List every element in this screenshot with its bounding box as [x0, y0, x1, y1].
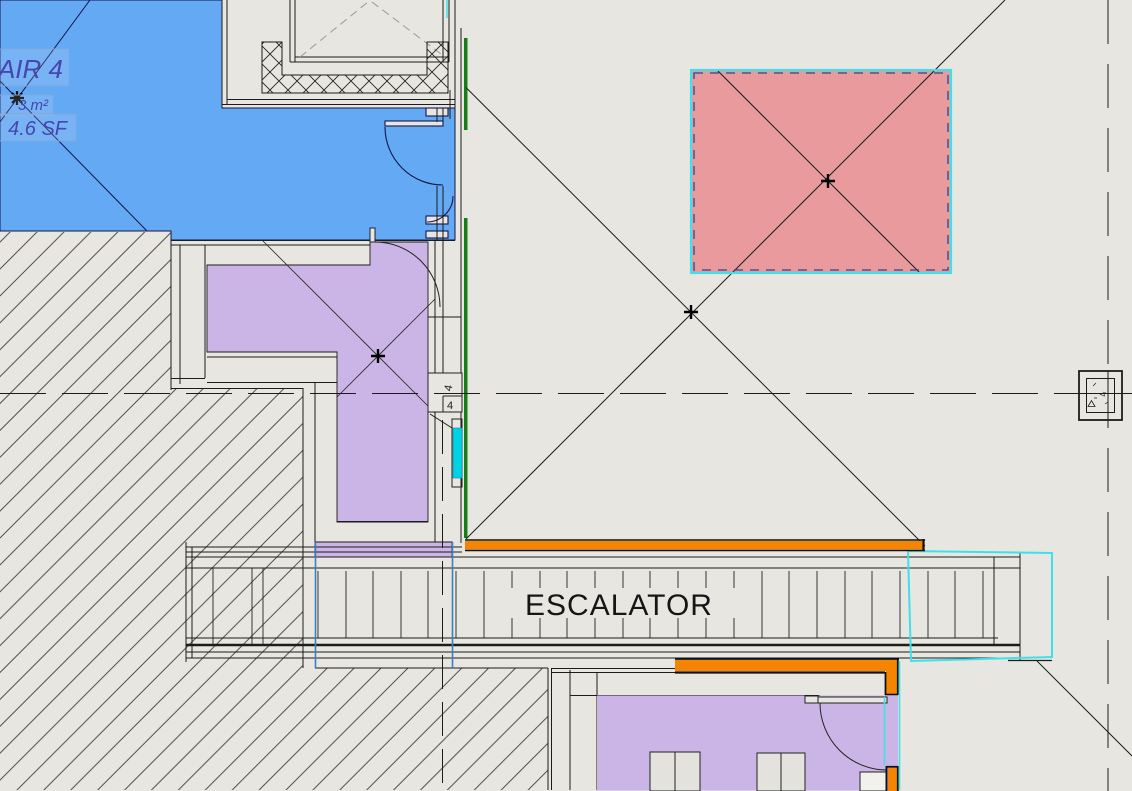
red-region-fill[interactable]	[691, 70, 951, 273]
door-tag[interactable]: 4 4	[428, 373, 462, 412]
lower-corner-box	[860, 772, 886, 791]
floorplan-canvas: AIR 4 3 m² 4.6 SF	[0, 0, 1132, 791]
room-tag-name: AIR 4	[0, 54, 63, 84]
room-tag-area-metric: 3 m²	[18, 97, 49, 114]
cyan-selected-element[interactable]	[453, 428, 462, 478]
escalator-label: ESCALATOR	[525, 589, 713, 622]
lower-purple-room-fill[interactable]	[597, 696, 898, 791]
green-wall-line-top	[464, 38, 468, 130]
room-tag-area-imperial: 4.6 SF	[8, 118, 69, 140]
orange-edge-top[interactable]	[465, 539, 925, 551]
purple-landing-strip	[315, 542, 452, 557]
green-wall-line-main	[464, 218, 468, 538]
column-grid-symbol[interactable]: 4	[1079, 371, 1122, 420]
door-tag-lower: 4	[447, 400, 453, 412]
